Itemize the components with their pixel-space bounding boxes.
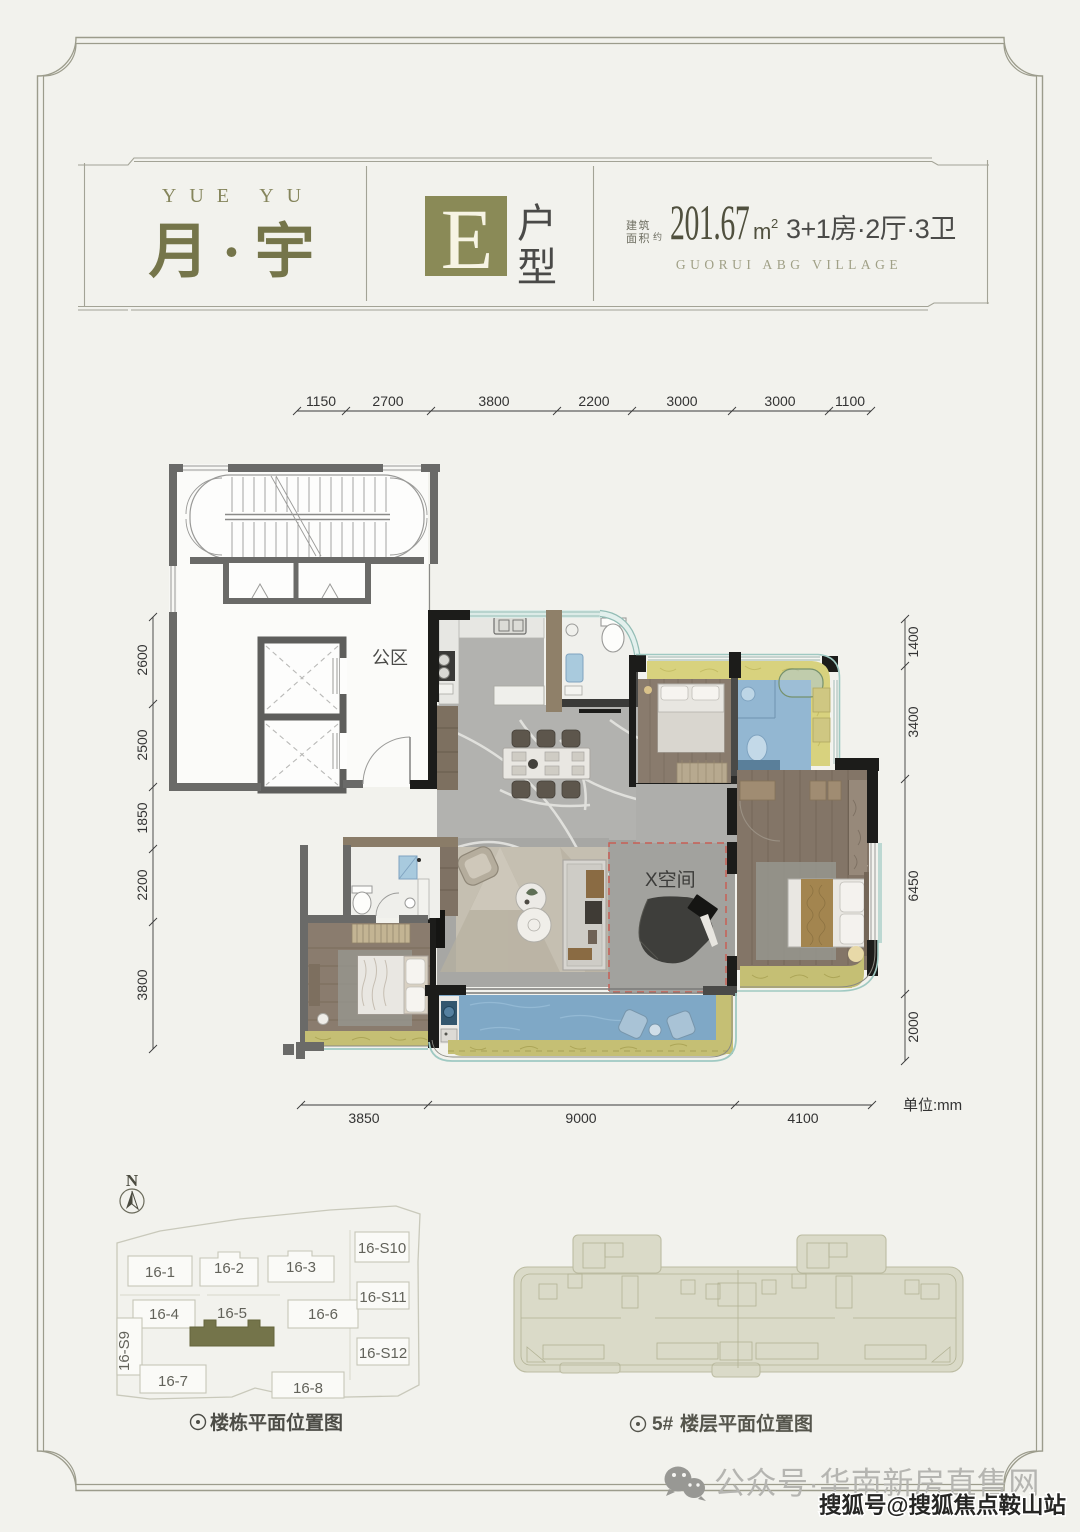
svg-text:1100: 1100 — [835, 393, 865, 409]
svg-text:16-1: 16-1 — [145, 1264, 175, 1281]
svg-text:2200: 2200 — [578, 393, 609, 409]
svg-text:9000: 9000 — [565, 1110, 596, 1126]
svg-text:16-7: 16-7 — [158, 1373, 188, 1390]
svg-text:16-S9: 16-S9 — [116, 1331, 133, 1371]
svg-text:1850: 1850 — [134, 802, 150, 833]
svg-text:面积: 面积 — [626, 232, 651, 245]
svg-text:3000: 3000 — [764, 393, 795, 409]
svg-text:16-3: 16-3 — [286, 1259, 316, 1276]
svg-text:E: E — [441, 191, 494, 287]
svg-text:201.67: 201.67 — [670, 194, 750, 250]
svg-text:楼栋平面位置图: 楼栋平面位置图 — [210, 1411, 343, 1434]
svg-text:2700: 2700 — [372, 393, 403, 409]
svg-text:2200: 2200 — [134, 869, 150, 900]
svg-text:16-2: 16-2 — [214, 1260, 244, 1277]
svg-text:月·宇: 月·宇 — [148, 219, 327, 285]
svg-text:16-S10: 16-S10 — [358, 1240, 406, 1257]
svg-text:16-6: 16-6 — [308, 1306, 338, 1323]
svg-text:公区: 公区 — [372, 648, 408, 668]
svg-text:建筑: 建筑 — [626, 218, 651, 232]
svg-text:16-8: 16-8 — [293, 1380, 323, 1397]
svg-text:2: 2 — [771, 216, 778, 231]
svg-text:2000: 2000 — [905, 1011, 921, 1042]
svg-text:3400: 3400 — [905, 706, 921, 737]
svg-text:约: 约 — [653, 231, 662, 242]
svg-text:楼层平面位置图: 楼层平面位置图 — [680, 1412, 813, 1435]
svg-text:16-S11: 16-S11 — [359, 1289, 406, 1306]
svg-text:3800: 3800 — [134, 969, 150, 1000]
svg-text:N: N — [126, 1171, 139, 1190]
svg-text:3850: 3850 — [348, 1110, 379, 1126]
svg-text:1150: 1150 — [306, 393, 336, 409]
svg-text:2600: 2600 — [134, 644, 150, 675]
svg-text:16-S12: 16-S12 — [359, 1345, 407, 1362]
svg-text:3000: 3000 — [666, 393, 697, 409]
svg-text:户: 户 — [517, 202, 557, 246]
svg-text:6450: 6450 — [905, 870, 921, 901]
svg-text:16-4: 16-4 — [149, 1306, 179, 1323]
svg-text:3800: 3800 — [478, 393, 509, 409]
svg-text:X空间: X空间 — [645, 869, 696, 891]
svg-text:5#: 5# — [652, 1414, 674, 1435]
svg-text:16-5: 16-5 — [217, 1305, 247, 1322]
svg-text:搜狐号@搜狐焦点鞍山站: 搜狐号@搜狐焦点鞍山站 — [819, 1492, 1066, 1518]
svg-text:单位:mm: 单位:mm — [903, 1097, 962, 1114]
svg-text:2500: 2500 — [134, 729, 150, 760]
svg-text:型: 型 — [517, 246, 557, 290]
svg-text:3+1房·2厅·3卫: 3+1房·2厅·3卫 — [786, 214, 956, 244]
svg-text:4100: 4100 — [787, 1110, 818, 1126]
svg-text:m: m — [753, 219, 771, 244]
svg-text:GUORUI ABG VILLAGE: GUORUI ABG VILLAGE — [676, 257, 902, 272]
svg-text:YUE YU: YUE YU — [162, 185, 314, 207]
svg-text:1400: 1400 — [905, 626, 921, 657]
